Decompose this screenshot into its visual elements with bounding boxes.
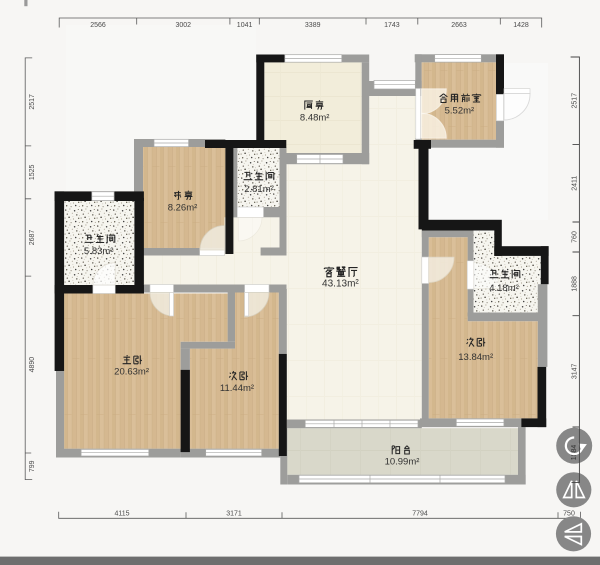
svg-text:2517: 2517 — [29, 94, 36, 110]
svg-text:2517: 2517 — [571, 93, 578, 109]
svg-text:2687: 2687 — [29, 230, 36, 246]
svg-text:43.13m²: 43.13m² — [322, 279, 359, 290]
svg-text:5.83m²: 5.83m² — [84, 246, 114, 257]
svg-text:2566: 2566 — [90, 22, 106, 29]
svg-text:4.18m²: 4.18m² — [489, 283, 519, 294]
svg-text:2663: 2663 — [451, 22, 467, 29]
svg-text:1428: 1428 — [513, 22, 529, 29]
svg-text:3171: 3171 — [226, 511, 242, 518]
svg-text:8.48m²: 8.48m² — [300, 112, 330, 123]
svg-text:3389: 3389 — [305, 22, 321, 29]
svg-text:10.99m²: 10.99m² — [385, 456, 420, 467]
svg-text:2.81m²: 2.81m² — [244, 184, 274, 195]
svg-text:5.52m²: 5.52m² — [445, 106, 475, 117]
svg-text:1888: 1888 — [571, 276, 578, 292]
svg-text:7794: 7794 — [412, 511, 428, 518]
svg-text:3147: 3147 — [571, 364, 578, 380]
svg-text:4115: 4115 — [114, 511, 129, 518]
svg-text:4890: 4890 — [29, 357, 36, 373]
svg-text:760: 760 — [571, 231, 578, 243]
svg-text:11.44m²: 11.44m² — [220, 383, 254, 394]
svg-text:1041: 1041 — [237, 22, 253, 29]
svg-text:1525: 1525 — [29, 165, 36, 181]
svg-text:799: 799 — [29, 460, 36, 472]
svg-text:2411: 2411 — [571, 176, 578, 191]
svg-text:13.84m²: 13.84m² — [458, 352, 493, 363]
svg-text:8.26m²: 8.26m² — [168, 203, 198, 214]
svg-text:3002: 3002 — [176, 22, 192, 29]
svg-text:1743: 1743 — [384, 22, 400, 29]
svg-text:20.63m²: 20.63m² — [114, 367, 149, 378]
